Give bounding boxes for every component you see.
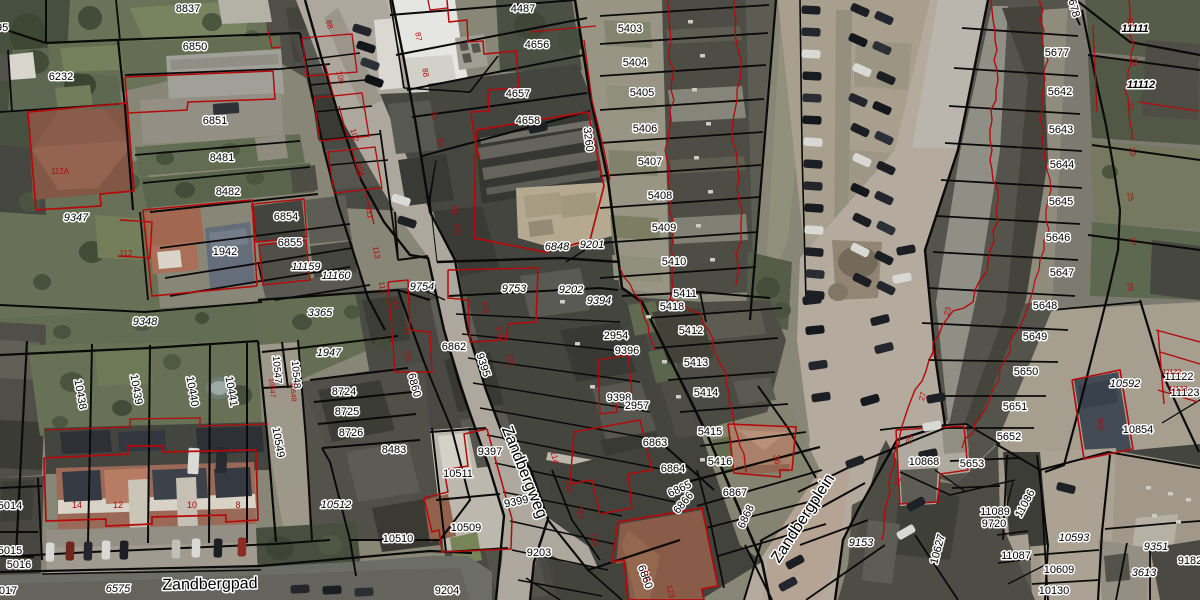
svg-text:11159: 11159 xyxy=(292,261,321,273)
svg-text:8482: 8482 xyxy=(216,186,240,198)
svg-text:9182: 9182 xyxy=(1178,555,1200,567)
svg-text:5406: 5406 xyxy=(633,123,657,135)
svg-text:112A: 112A xyxy=(51,167,70,176)
svg-text:6855: 6855 xyxy=(278,237,302,249)
svg-text:6848: 6848 xyxy=(545,241,570,253)
svg-text:5095: 5095 xyxy=(0,22,8,34)
svg-text:6862: 6862 xyxy=(442,341,466,353)
svg-text:10511: 10511 xyxy=(443,468,473,480)
svg-text:5404: 5404 xyxy=(623,57,647,69)
svg-text:5015: 5015 xyxy=(0,545,22,557)
svg-text:5643: 5643 xyxy=(1049,124,1073,136)
svg-text:6851: 6851 xyxy=(203,115,227,127)
svg-text:5649: 5649 xyxy=(1023,331,1047,343)
svg-text:9351: 9351 xyxy=(1144,541,1168,553)
svg-text:6850: 6850 xyxy=(183,41,207,53)
svg-text:8483: 8483 xyxy=(382,444,406,456)
svg-text:9347: 9347 xyxy=(64,212,89,224)
svg-text:9720: 9720 xyxy=(982,518,1006,530)
svg-text:9201: 9201 xyxy=(580,239,604,251)
svg-text:5652: 5652 xyxy=(997,431,1021,443)
svg-text:4656: 4656 xyxy=(525,39,549,51)
svg-text:5648: 5648 xyxy=(1033,300,1057,312)
svg-text:5642: 5642 xyxy=(1048,86,1072,98)
svg-text:5644: 5644 xyxy=(1050,159,1074,171)
svg-text:112: 112 xyxy=(120,249,133,258)
svg-text:9153: 9153 xyxy=(849,537,874,549)
svg-text:1942: 1942 xyxy=(213,246,237,258)
svg-text:11123: 11123 xyxy=(1169,386,1188,393)
svg-text:10130: 10130 xyxy=(1039,585,1070,597)
svg-text:6575: 6575 xyxy=(106,583,131,595)
svg-text:10: 10 xyxy=(187,500,197,510)
svg-text:6864: 6864 xyxy=(661,463,685,475)
svg-text:8481: 8481 xyxy=(210,152,234,164)
svg-text:9753: 9753 xyxy=(502,283,527,295)
svg-text:11089: 11089 xyxy=(980,506,1010,518)
svg-text:5415: 5415 xyxy=(698,426,722,438)
svg-text:5413: 5413 xyxy=(684,357,708,369)
svg-text:5405: 5405 xyxy=(630,87,654,99)
svg-text:3365: 3365 xyxy=(308,307,333,319)
svg-text:10854: 10854 xyxy=(1123,424,1154,436)
svg-text:10509: 10509 xyxy=(451,522,482,534)
svg-text:Zandbergpad: Zandbergpad xyxy=(162,575,257,594)
svg-text:5650: 5650 xyxy=(1014,366,1038,378)
svg-text:5403: 5403 xyxy=(618,23,642,35)
svg-text:11122: 11122 xyxy=(1163,369,1182,376)
svg-text:11160: 11160 xyxy=(322,270,352,282)
svg-text:6863: 6863 xyxy=(643,437,667,449)
svg-text:10868: 10868 xyxy=(909,456,940,468)
svg-text:9397: 9397 xyxy=(478,446,502,458)
svg-text:9396: 9396 xyxy=(615,345,639,357)
svg-text:6854: 6854 xyxy=(274,211,298,223)
svg-text:8726: 8726 xyxy=(339,427,363,439)
svg-text:5017: 5017 xyxy=(0,585,17,597)
svg-text:11087: 11087 xyxy=(1001,550,1031,562)
svg-text:9348: 9348 xyxy=(133,316,158,328)
svg-text:10592: 10592 xyxy=(1110,378,1141,390)
svg-text:11112: 11112 xyxy=(1127,79,1155,91)
svg-text:8724: 8724 xyxy=(332,386,356,398)
svg-text:5651: 5651 xyxy=(1003,401,1027,413)
svg-text:5653: 5653 xyxy=(960,458,984,470)
svg-text:9204: 9204 xyxy=(435,585,459,597)
svg-text:12: 12 xyxy=(113,500,123,510)
svg-text:4657: 4657 xyxy=(506,88,530,100)
svg-text:6867: 6867 xyxy=(723,487,747,499)
svg-text:4487: 4487 xyxy=(511,3,535,15)
svg-text:5418: 5418 xyxy=(660,301,684,313)
svg-text:10609: 10609 xyxy=(1044,564,1075,576)
svg-text:10510: 10510 xyxy=(383,533,414,545)
svg-text:5409: 5409 xyxy=(652,222,676,234)
svg-text:9394: 9394 xyxy=(587,295,611,307)
svg-text:2957: 2957 xyxy=(625,400,649,412)
svg-text:5014: 5014 xyxy=(0,500,22,512)
svg-text:9754: 9754 xyxy=(410,281,434,293)
svg-text:10593: 10593 xyxy=(1059,532,1090,544)
svg-text:36: 36 xyxy=(771,454,783,466)
svg-text:1947: 1947 xyxy=(317,347,342,359)
svg-text:5647: 5647 xyxy=(1050,267,1074,279)
svg-text:101: 101 xyxy=(452,223,462,238)
svg-text:5408: 5408 xyxy=(648,190,672,202)
svg-text:5677: 5677 xyxy=(1045,47,1069,59)
svg-text:5407: 5407 xyxy=(638,156,662,168)
svg-text:8837: 8837 xyxy=(176,3,200,15)
svg-text:5411: 5411 xyxy=(673,288,697,300)
svg-text:5016: 5016 xyxy=(7,559,31,571)
svg-text:9203: 9203 xyxy=(527,547,551,559)
svg-text:14: 14 xyxy=(72,500,82,510)
svg-text:5414: 5414 xyxy=(694,387,718,399)
svg-text:10512: 10512 xyxy=(321,499,352,511)
svg-text:5410: 5410 xyxy=(662,256,686,268)
svg-text:5416: 5416 xyxy=(708,456,732,468)
svg-text:3613: 3613 xyxy=(1132,567,1157,579)
svg-text:99: 99 xyxy=(450,205,460,215)
svg-text:8725: 8725 xyxy=(335,406,359,418)
svg-text:5412: 5412 xyxy=(679,325,703,337)
svg-text:5645: 5645 xyxy=(1049,196,1073,208)
svg-text:5646: 5646 xyxy=(1046,232,1070,244)
svg-text:4658: 4658 xyxy=(516,115,540,127)
svg-text:2954: 2954 xyxy=(604,330,628,342)
svg-text:8: 8 xyxy=(235,500,240,510)
svg-text:6232: 6232 xyxy=(49,71,73,83)
svg-text:9202: 9202 xyxy=(559,284,583,296)
